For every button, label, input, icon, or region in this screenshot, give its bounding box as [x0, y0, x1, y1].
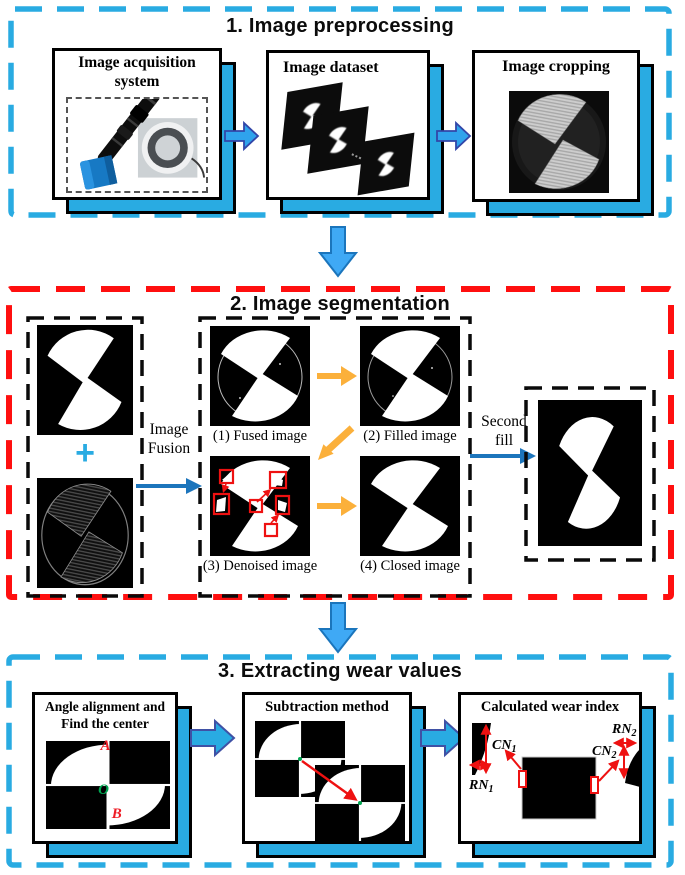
point-o-label: O [98, 783, 109, 798]
section-preprocessing: 1. Image preprocessing Image acquisition… [8, 6, 672, 218]
left-notch-box [519, 771, 526, 787]
closed-image [360, 456, 460, 556]
camera-and-ring-light-photo [68, 99, 206, 191]
cn2-label: CN2 [592, 744, 616, 761]
rn2-label: RN2 [611, 722, 636, 739]
wear-index-graphic: CN1 RN1 CN2 RN2 [466, 719, 640, 843]
card-alignment-title-line1: Angle alignment and [45, 699, 165, 714]
card-cropping-title: Image cropping [475, 53, 637, 76]
dataset-tile-wear-thumb [324, 124, 352, 156]
section-extracting: 3. Extracting wear values Angle alignmen… [6, 654, 674, 868]
section-segmentation: 2. Image segmentation + Image Fusion [6, 286, 674, 600]
card-cropping: Image cropping [472, 50, 640, 202]
dataset-tile-wear-thumb [373, 149, 398, 179]
yellow-arrow-diagonal-icon [308, 420, 360, 466]
right-pointer-arrow [599, 761, 618, 781]
card-dataset: Image dataset [266, 50, 430, 200]
fusion-label-line2: Fusion [148, 440, 190, 457]
cropped-wear-photo [509, 91, 609, 193]
flow-arrow-right-2-icon [436, 120, 472, 152]
edge-map-image [37, 478, 133, 588]
fusion-arrow-icon [134, 476, 204, 496]
step-label-denoised: (3) Denoised image [188, 558, 332, 575]
center-reference-block [522, 757, 596, 819]
rn1-label: RN1 [468, 778, 493, 795]
point-a-label: A [101, 739, 111, 754]
segmentation-result-box [524, 386, 656, 562]
fusion-input-box: + [26, 316, 144, 598]
right-wear-wedge [625, 749, 640, 787]
section-title-extracting: 3. Extracting wear values [6, 660, 674, 683]
card-acquisition-title-line2: system [115, 73, 160, 90]
flow-arrow-right-3-icon [190, 718, 236, 758]
section-title-preprocessing: 1. Image preprocessing [8, 15, 672, 38]
center-shift-arrow [253, 721, 407, 843]
yellow-arrow-1-icon [316, 364, 358, 388]
card-subtraction-title: Subtraction method [245, 695, 409, 716]
card-acquisition: Image acquisition system [52, 48, 222, 200]
card-alignment-title: Angle alignment and Find the center [35, 695, 175, 733]
card-alignment-title-line2: Find the center [61, 716, 149, 731]
denoised-image [210, 456, 310, 556]
card-acquisition-title: Image acquisition system [55, 51, 219, 91]
card-subtraction: Subtraction method [242, 692, 412, 844]
card-wear-index: Calculated wear index CN1 [458, 692, 642, 844]
right-notch-box [591, 777, 598, 793]
plus-icon: + [26, 436, 144, 470]
dataset-tile-2 [307, 106, 368, 173]
point-b-label: B [112, 807, 122, 822]
filled-image [360, 326, 460, 426]
step-label-closed: (4) Closed image [338, 558, 482, 575]
card-acquisition-title-line1: Image acquisition [78, 54, 196, 71]
section-title-segmentation: 2. Image segmentation [6, 293, 674, 316]
second-fill-label-line1: Second [481, 413, 527, 430]
dataset-tile-3 [358, 133, 415, 196]
cn1-label: CN1 [492, 738, 516, 755]
subtraction-image [253, 721, 407, 843]
acquisition-photo-frame [66, 97, 208, 193]
binary-wear-image [37, 325, 133, 435]
fusion-label-line1: Image [150, 421, 189, 438]
card-dataset-title: Image dataset [269, 53, 427, 77]
segmentation-steps-box: (1) Fused image (2) Filled image [198, 316, 472, 598]
yellow-arrow-2-icon [316, 494, 358, 518]
fused-image [210, 326, 310, 426]
flow-arrow-right-1-icon [224, 120, 260, 152]
alignment-image: A O B [46, 741, 170, 829]
second-filled-image [538, 400, 642, 546]
left-wear-wedge [472, 723, 491, 775]
card-alignment: Angle alignment and Find the center A O … [32, 692, 178, 844]
figure-canvas: 1. Image preprocessing Image acquisition… [0, 0, 685, 875]
flow-arrow-down-2-icon [318, 602, 358, 654]
flow-arrow-down-1-icon [318, 226, 358, 278]
card-wear-index-title: Calculated wear index [461, 695, 639, 716]
